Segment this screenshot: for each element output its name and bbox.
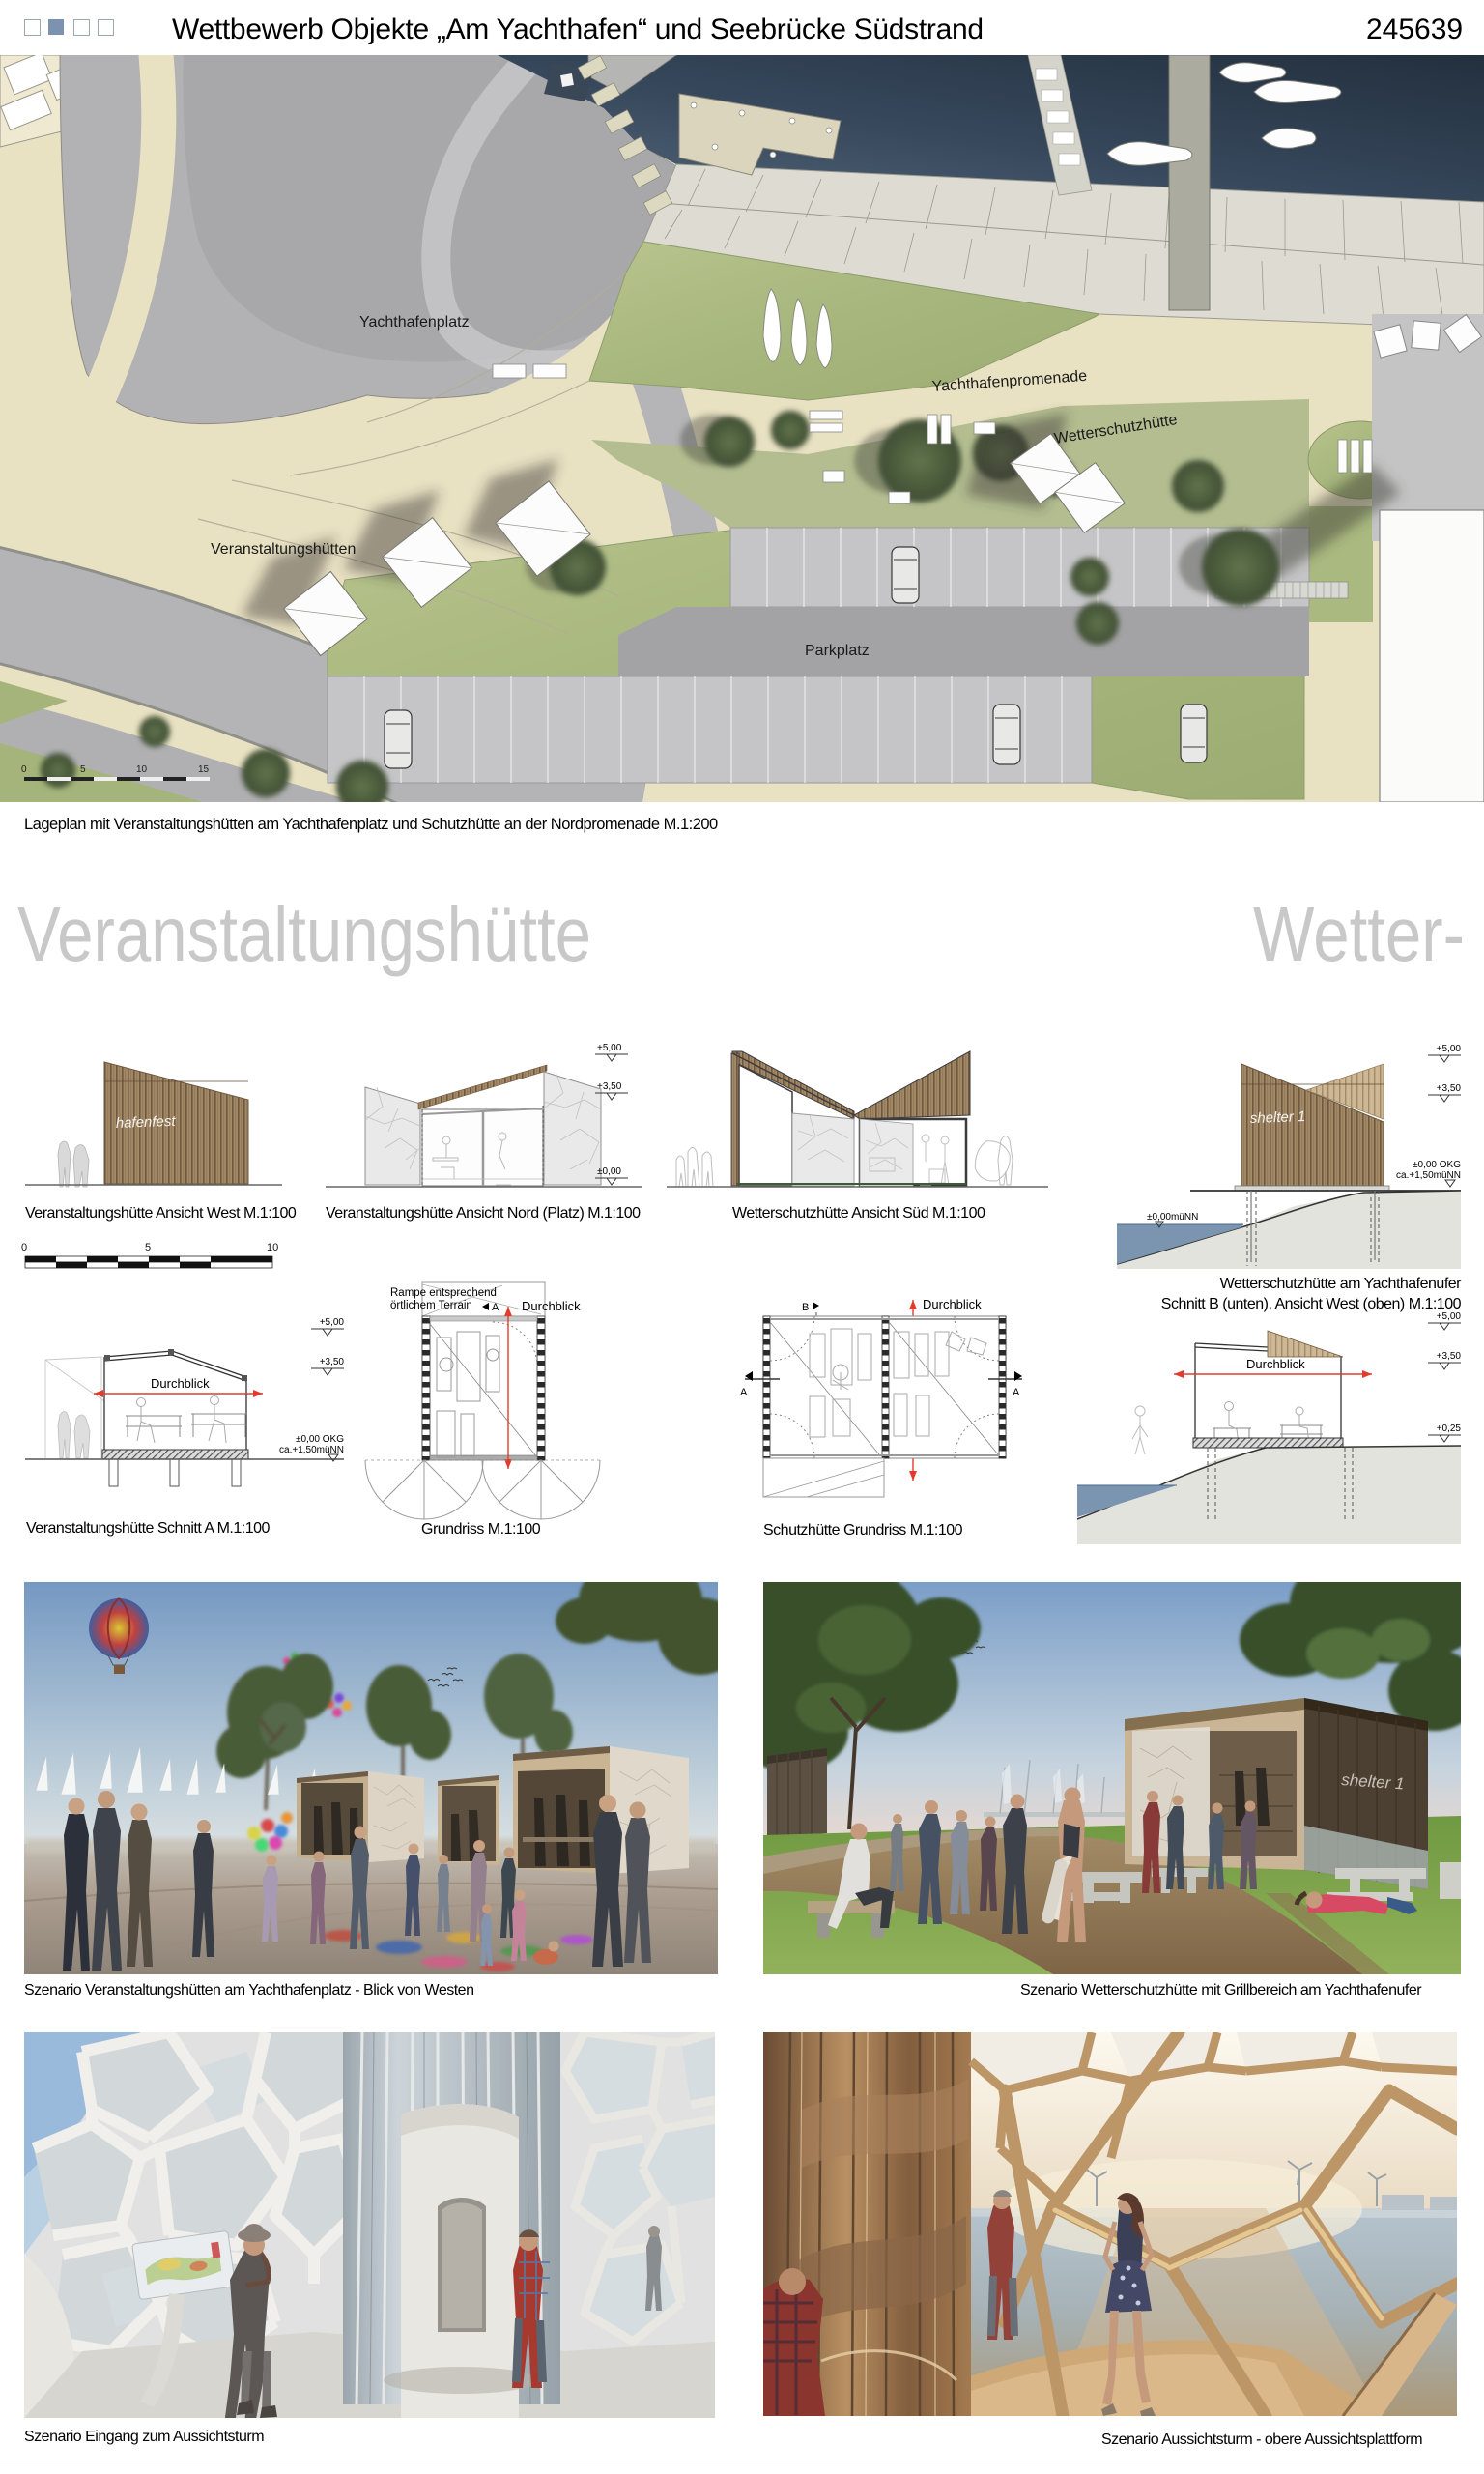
svg-text:+5,00: +5,00 — [597, 1043, 622, 1053]
svg-text:Durchblick: Durchblick — [151, 1376, 210, 1391]
svg-text:Wetterschutzhütte Ansicht Süd: Wetterschutzhütte Ansicht Süd M.1:100 — [732, 1205, 985, 1222]
svg-text:ca.+1,50müNN: ca.+1,50müNN — [1396, 1170, 1461, 1181]
svg-text:Rampe entsprechend: Rampe entsprechend — [390, 1287, 497, 1299]
svg-text:Veranstaltungshütte Ansicht No: Veranstaltungshütte Ansicht Nord (Platz)… — [326, 1205, 641, 1222]
svg-text:hafenfest: hafenfest — [116, 1113, 177, 1132]
svg-text:±0,00: ±0,00 — [597, 1166, 621, 1177]
svg-text:Durchblick: Durchblick — [1246, 1357, 1305, 1371]
svg-text:10: 10 — [267, 1242, 278, 1253]
svg-text:A: A — [492, 1302, 499, 1313]
svg-text:+0,25: +0,25 — [1437, 1424, 1462, 1434]
svg-text:Durchblick: Durchblick — [923, 1297, 982, 1311]
svg-text:Veranstaltungshütte Schnitt A: Veranstaltungshütte Schnitt A M.1:100 — [26, 1520, 271, 1537]
svg-text:+5,00: +5,00 — [1437, 1044, 1462, 1054]
svg-text:+3,50: +3,50 — [320, 1357, 345, 1367]
svg-text:±0,00 OKG: ±0,00 OKG — [1413, 1160, 1461, 1170]
svg-text:A: A — [1013, 1387, 1020, 1398]
svg-text:örtlichem Terrain: örtlichem Terrain — [390, 1300, 472, 1311]
svg-text:B: B — [802, 1302, 809, 1313]
svg-text:+5,00: +5,00 — [320, 1317, 345, 1328]
svg-text:+3,50: +3,50 — [1437, 1351, 1462, 1362]
svg-text:5: 5 — [145, 1242, 151, 1253]
svg-text:+5,00: +5,00 — [1437, 1311, 1462, 1322]
svg-text:shelter 1: shelter 1 — [1250, 1108, 1306, 1127]
svg-text:±0,00müNN: ±0,00müNN — [1147, 1212, 1198, 1223]
svg-text:Veranstaltungshütte Ansicht We: Veranstaltungshütte Ansicht West M.1:100 — [25, 1205, 297, 1222]
svg-text:Schutzhütte Grundriss M.1:100: Schutzhütte Grundriss M.1:100 — [763, 1522, 963, 1539]
svg-text:A: A — [740, 1387, 748, 1398]
svg-text:+3,50: +3,50 — [1437, 1083, 1462, 1094]
svg-text:±0,00 OKG: ±0,00 OKG — [296, 1434, 344, 1445]
svg-text:Grundriss M.1:100: Grundriss M.1:100 — [421, 1521, 541, 1538]
svg-text:0: 0 — [21, 1242, 27, 1253]
svg-text:ca.+1,50müNN: ca.+1,50müNN — [279, 1445, 344, 1455]
svg-text:+3,50: +3,50 — [597, 1081, 622, 1092]
svg-text:Durchblick: Durchblick — [522, 1299, 581, 1313]
